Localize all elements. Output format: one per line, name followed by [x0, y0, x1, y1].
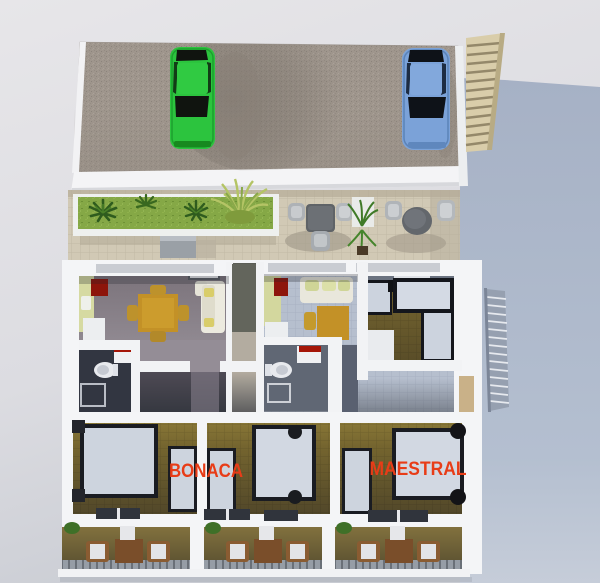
svg-text:MAESTRAL: MAESTRAL [370, 459, 467, 480]
svg-text:BONACA: BONACA [169, 461, 243, 482]
